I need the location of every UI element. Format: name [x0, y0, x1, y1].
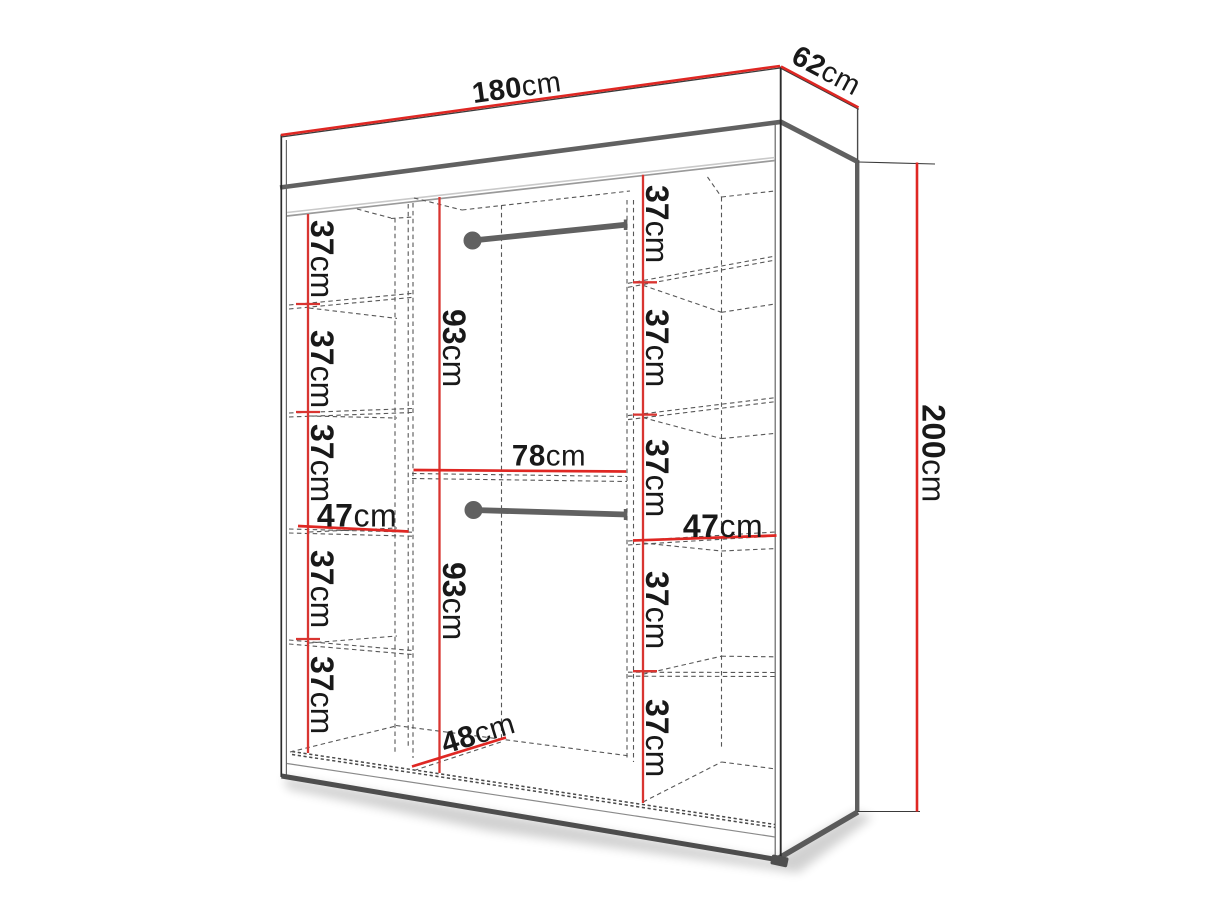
svg-text:47cm: 47cm	[317, 498, 397, 534]
svg-text:93cm: 93cm	[436, 309, 472, 387]
svg-text:37cm: 37cm	[304, 424, 340, 502]
svg-text:37cm: 37cm	[639, 699, 675, 777]
svg-text:93cm: 93cm	[436, 562, 472, 640]
svg-text:37cm: 37cm	[304, 330, 340, 408]
svg-text:37cm: 37cm	[639, 439, 675, 517]
svg-text:78cm: 78cm	[512, 440, 586, 473]
svg-text:37cm: 37cm	[639, 185, 675, 263]
svg-text:200cm: 200cm	[916, 404, 952, 503]
svg-text:37cm: 37cm	[304, 220, 340, 298]
svg-text:37cm: 37cm	[304, 656, 340, 734]
svg-text:37cm: 37cm	[304, 550, 340, 628]
svg-text:37cm: 37cm	[639, 571, 675, 649]
svg-text:47cm: 47cm	[683, 508, 763, 544]
svg-text:37cm: 37cm	[639, 309, 675, 387]
